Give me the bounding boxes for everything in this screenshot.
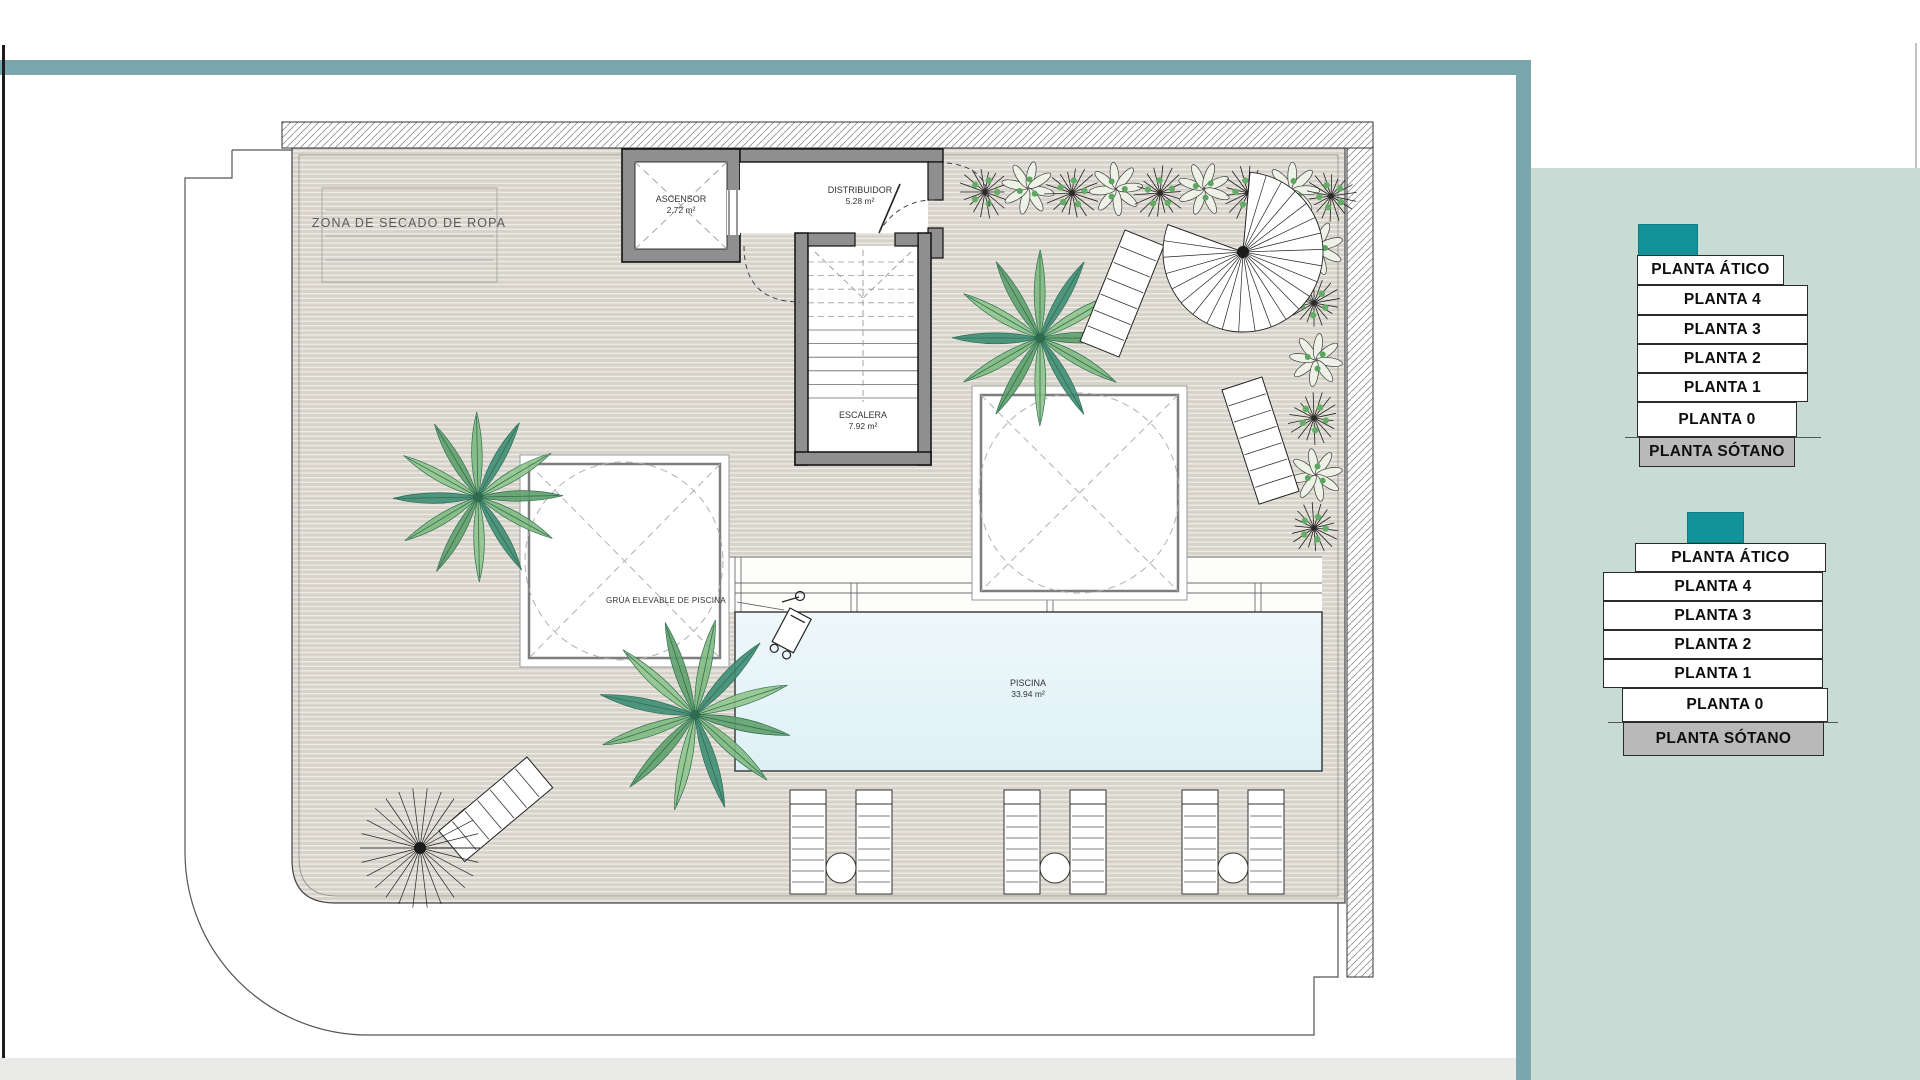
room-label-ascensor: ASCENSOR2.72 m² <box>656 194 707 216</box>
room-label-distribuidor: DISTRIBUIDOR5.28 m² <box>828 185 893 207</box>
floor-button-planta-4[interactable]: PLANTA 4 <box>1603 572 1823 601</box>
floor-button-planta-atico[interactable]: PLANTA ÁTICO <box>1637 255 1784 285</box>
planter-left <box>520 455 729 667</box>
floor-button-planta-0[interactable]: PLANTA 0 <box>1637 402 1797 437</box>
top-parapet-hatch <box>282 122 1373 148</box>
atico-marker-cube <box>1687 512 1744 543</box>
pool-hoist-label: GRÚA ELEVABLE DE PISCINA <box>606 596 726 606</box>
floor-button-planta-sotano[interactable]: PLANTA SÓTANO <box>1623 722 1824 756</box>
floor-button-planta-2[interactable]: PLANTA 2 <box>1637 344 1808 373</box>
floor-button-planta-1[interactable]: PLANTA 1 <box>1637 373 1808 402</box>
floor-button-planta-3[interactable]: PLANTA 3 <box>1637 315 1808 344</box>
floor-button-planta-0[interactable]: PLANTA 0 <box>1622 688 1828 722</box>
floor-button-planta-3[interactable]: PLANTA 3 <box>1603 601 1823 630</box>
right-parapet-hatch <box>1347 148 1373 977</box>
room-label-piscina: PISCINA33.94 m² <box>1010 678 1046 700</box>
zona-secado-label: ZONA DE SECADO DE ROPA <box>312 216 506 232</box>
floor-plan <box>0 0 1920 1080</box>
sun-loungers <box>790 790 1284 894</box>
floor-button-planta-sotano[interactable]: PLANTA SÓTANO <box>1639 437 1795 467</box>
floor-button-planta-1[interactable]: PLANTA 1 <box>1603 659 1823 688</box>
atico-marker-cube <box>1638 224 1698 256</box>
floor-button-planta-atico[interactable]: PLANTA ÁTICO <box>1635 543 1826 572</box>
planter-right <box>972 386 1187 600</box>
plan-viewer: ZONA DE SECADO DE ROPA ASCENSOR2.72 m² D… <box>0 0 1920 1080</box>
floor-button-planta-2[interactable]: PLANTA 2 <box>1603 630 1823 659</box>
room-label-escalera: ESCALERA7.92 m² <box>839 410 887 432</box>
floor-button-planta-4[interactable]: PLANTA 4 <box>1637 285 1808 315</box>
